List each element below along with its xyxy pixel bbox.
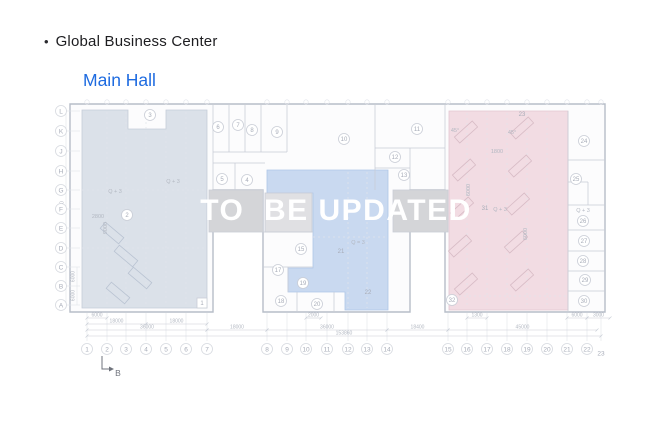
- room-number: 21: [338, 249, 345, 255]
- bullet-icon: •: [44, 35, 49, 48]
- row-axis-label: D: [59, 245, 64, 252]
- row-axis-label: E: [59, 225, 64, 232]
- col-axis-label: 3: [124, 346, 128, 353]
- col-axis-label: 10: [302, 346, 310, 353]
- dimension-text: 36000: [140, 325, 154, 331]
- annotation-text: Q + 3: [108, 189, 122, 195]
- section-marker-arrow: [109, 367, 114, 372]
- room-number: 11: [414, 127, 421, 133]
- room-number: 27: [581, 239, 588, 245]
- room-number: 31: [482, 206, 489, 212]
- dimension-text: 36000: [320, 325, 334, 331]
- col-axis-label: 20: [543, 346, 551, 353]
- annotation-text: Q + 3: [493, 207, 507, 213]
- dimension-text: 18000: [110, 319, 124, 325]
- room-number: 13: [401, 173, 408, 179]
- annotation-text: 45°: [508, 130, 516, 136]
- dimension-text: 2000: [308, 313, 319, 319]
- row-axis-label: G: [58, 187, 63, 194]
- col-axis-label: 6: [184, 346, 188, 353]
- col-axis-label: 21: [563, 346, 571, 353]
- room-number: 15: [298, 247, 305, 253]
- row-axis-label: J: [59, 148, 62, 155]
- annotation-text: 1800: [491, 149, 503, 155]
- row-axis-label: B: [59, 283, 63, 290]
- dimension-text: 6000: [571, 313, 582, 319]
- col-axis-label: 15: [444, 346, 452, 353]
- dimension-text: 6000: [91, 313, 102, 319]
- room-number: 23: [519, 112, 526, 118]
- dimension-text: 3000: [593, 313, 604, 319]
- annotation-text: 9000: [103, 222, 109, 234]
- col-axis-label: 17: [483, 346, 491, 353]
- dimension-text: 18000: [170, 319, 184, 325]
- room-number: 29: [582, 278, 589, 284]
- dimension-text: 153860: [336, 331, 353, 337]
- row-axis-label: A: [59, 302, 64, 309]
- annotation-text: 45°: [451, 128, 459, 134]
- dimension-text: 1300: [471, 313, 482, 319]
- col-axis-label: 13: [363, 346, 371, 353]
- col-axis-label: 8: [265, 346, 269, 353]
- row-axis-label: C: [59, 264, 64, 271]
- dimension-text: 18000: [230, 325, 244, 331]
- dimension-text: 45000: [516, 325, 530, 331]
- room-number: 32: [449, 298, 456, 304]
- room-number: 12: [392, 155, 399, 161]
- room-number: 10: [341, 137, 348, 143]
- col-axis-label: 7: [205, 346, 209, 353]
- room-number: 18: [278, 299, 285, 305]
- row-axis-label: H: [59, 168, 64, 175]
- row-axis-label: L: [59, 108, 63, 115]
- slide-title-row: • Global Business Center: [44, 33, 218, 50]
- col-axis-label: 19: [523, 346, 531, 353]
- room-number: 25: [573, 177, 580, 183]
- room-number: 26: [580, 219, 587, 225]
- room-number: 30: [581, 299, 588, 305]
- col-axis-label: 2: [105, 346, 109, 353]
- annotation-text: 2800: [92, 214, 104, 220]
- dimension-text: 18400: [411, 325, 425, 331]
- col-axis-label: 1: [85, 346, 89, 353]
- col-axis-label: 18: [503, 346, 511, 353]
- zone-left: [82, 110, 207, 308]
- row-axis-label: F: [59, 206, 63, 213]
- col-axis-label: 11: [324, 346, 331, 353]
- annotation-text: Q = 3: [351, 240, 365, 246]
- dimension-text: 6000: [71, 290, 77, 301]
- room-number: 22: [365, 290, 372, 296]
- room-number: 19: [300, 281, 307, 287]
- annotation-text: Q + 3: [166, 179, 180, 185]
- col-axis-label: 5: [164, 346, 168, 353]
- col-axis-label: 22: [583, 346, 591, 353]
- col-axis-label: 14: [383, 346, 391, 353]
- dimension-text: 6000: [71, 271, 77, 282]
- room-number: 17: [275, 268, 282, 274]
- section-marker-line: [102, 356, 109, 369]
- row-axis-label: K: [59, 128, 64, 135]
- col-axis-label: 12: [344, 346, 352, 353]
- col-axis-label: 4: [144, 346, 148, 353]
- room-number: 28: [580, 259, 587, 265]
- col-axis-label: 16: [463, 346, 471, 353]
- slide-subtitle: Main Hall: [83, 70, 156, 91]
- col-axis-label: 9: [285, 346, 289, 353]
- room-number: 20: [314, 302, 321, 308]
- section-marker-label: B: [115, 368, 121, 378]
- annotation-text: 6000: [523, 228, 529, 240]
- room-number: 24: [581, 139, 588, 145]
- col-axis-label: 23: [597, 350, 605, 357]
- annotation-text: Q + 3: [576, 208, 590, 214]
- slide-title: Global Business Center: [56, 33, 218, 50]
- watermark-text: TO BE UPDATED: [196, 193, 476, 229]
